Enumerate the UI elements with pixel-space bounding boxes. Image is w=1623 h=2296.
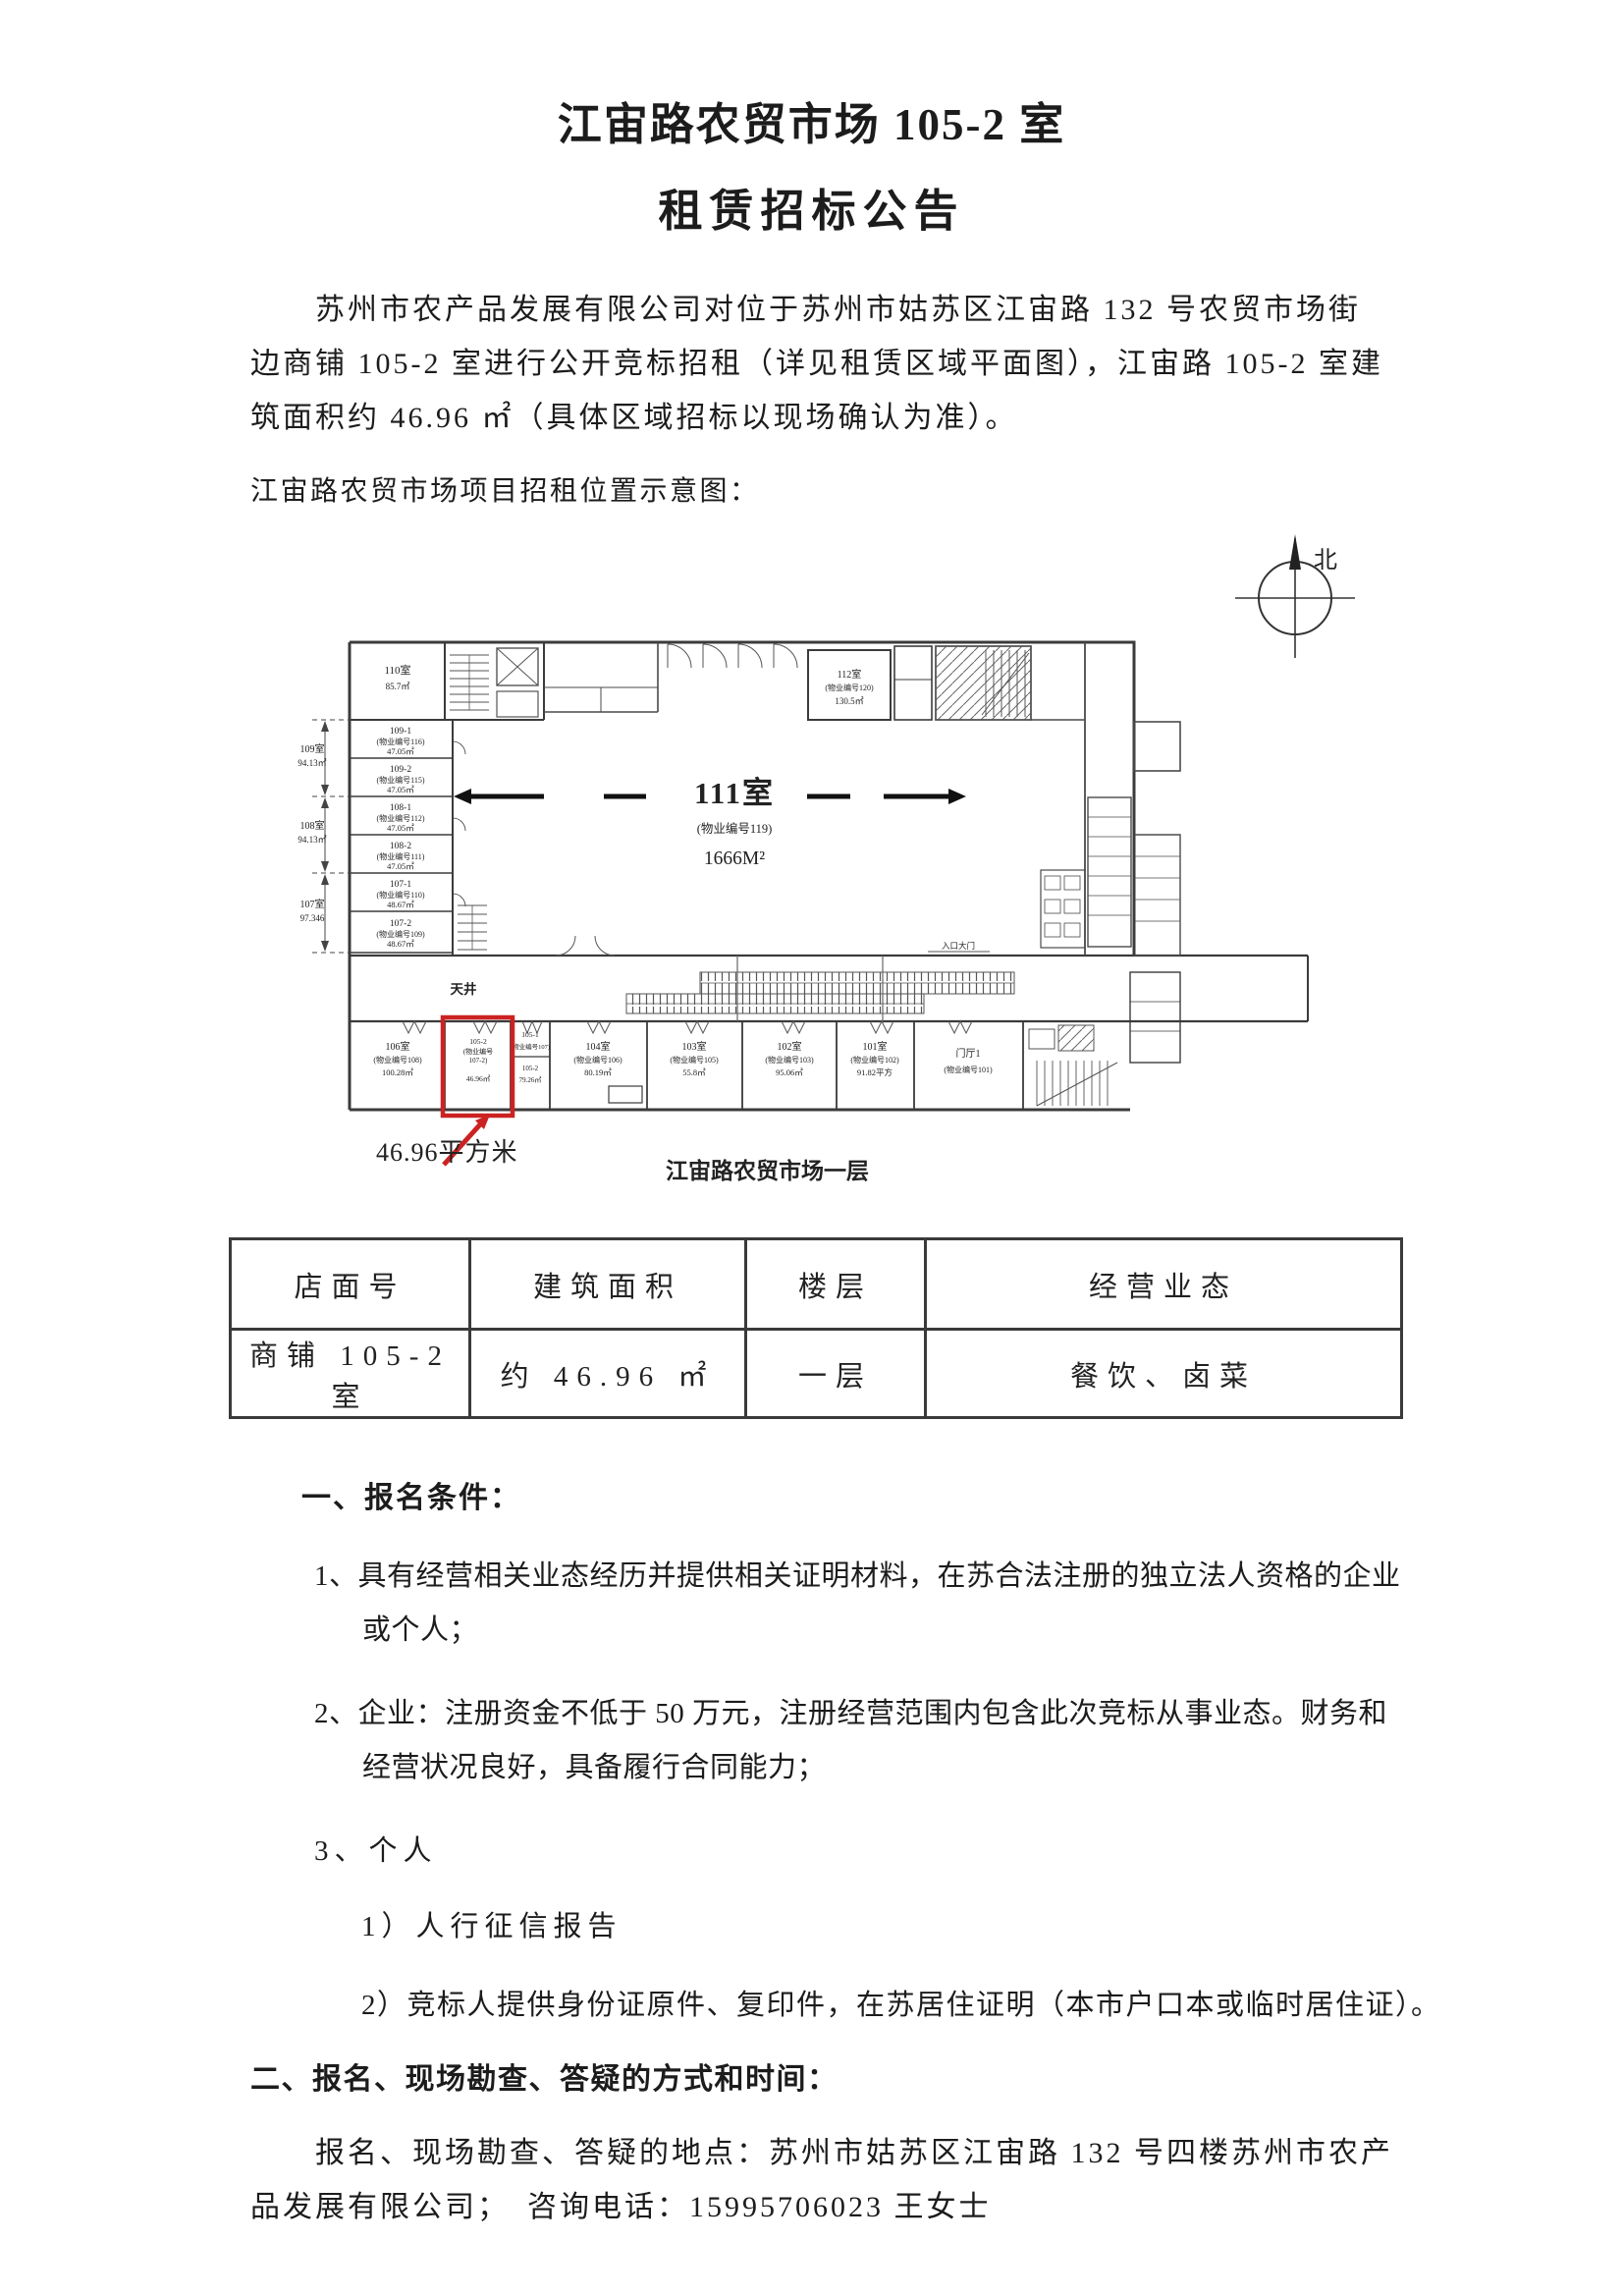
cell-business-type: 餐饮、卤菜: [926, 1330, 1402, 1418]
hall-code: (物业编号119): [697, 821, 773, 836]
dim-value: 97.346: [300, 913, 325, 923]
condition-line: 经营状况良好，具备履行合同能力；: [314, 1741, 1387, 1795]
main-title: 江宙路农贸市场 105-2 室: [0, 88, 1623, 152]
plan-caption: 江宙路农贸市场一层: [666, 1158, 869, 1183]
room-sub-name: 105-2: [522, 1065, 539, 1072]
room-name: 108-2: [390, 842, 411, 851]
room-name: 103室: [682, 1040, 707, 1053]
room-name: 112室: [838, 668, 862, 681]
room-name: 105-2: [469, 1037, 487, 1046]
room-code: (物业编号115): [376, 775, 424, 785]
north-compass-icon: 北: [1235, 534, 1355, 658]
room-area: 47.05㎡: [387, 823, 414, 833]
room-name: 107-2: [390, 919, 411, 929]
room-code: (物业编号110): [376, 890, 424, 900]
dim-name: 107室: [300, 898, 325, 910]
room-area: 80.19㎡: [584, 1067, 612, 1077]
contact-paragraph: 报名、现场勘查、答疑的地点：苏州市姑苏区江宙路 132 号四楼苏州市农产 品发展…: [250, 2126, 1393, 2234]
dim-name: 108室: [300, 819, 325, 832]
small-stair: [458, 905, 487, 950]
contact-line: 报名、现场勘查、答疑的地点：苏州市姑苏区江宙路 132 号四楼苏州市农产: [250, 2126, 1393, 2180]
room-area: 47.05㎡: [387, 746, 414, 756]
sub-item-1: 1）人行征信报告: [361, 1903, 622, 1944]
condition-line: 2、企业：注册资金不低于 50 万元，注册经营范围内包含此次竞标从事业态。财务和: [314, 1687, 1387, 1741]
room-code: (物业编号120): [825, 683, 874, 692]
plan-section-label: 江宙路农贸市场项目招租位置示意图：: [250, 469, 760, 509]
room-name: 门厅1: [956, 1047, 981, 1060]
room-name: 109-1: [390, 727, 411, 737]
door-swings-top: [668, 644, 797, 668]
courtyard-strip: 天井: [451, 956, 1015, 1021]
room-name: 107-1: [390, 880, 411, 890]
cell-shop-number: 商铺 105-2 室: [231, 1330, 470, 1418]
shop-info-table: 店面号 建筑面积 楼层 经营业态 商铺 105-2 室 约 46.96 ㎡ 一层…: [229, 1237, 1403, 1419]
highlight-area-label: 46.96平方米: [376, 1138, 518, 1167]
building-outline: [350, 642, 1308, 1110]
highlight-105-2: 46.96平方米: [376, 1017, 518, 1167]
staircase-hatched: [936, 646, 1031, 720]
condition-item-1: 1、具有经营相关业态经历并提供相关证明材料，在苏合法注册的独立法人资格的企业 或…: [314, 1550, 1401, 1658]
room-name: 104室: [586, 1040, 611, 1053]
dim-value: 94.13㎡: [298, 835, 326, 845]
north-label: 北: [1314, 547, 1337, 574]
room-code: (物业编号112): [376, 813, 424, 823]
highlight-box: [443, 1017, 513, 1116]
cell-floor: 一层: [746, 1330, 926, 1418]
room-sub-area: 79.26㎡: [519, 1076, 542, 1084]
cell-area: 约 46.96 ㎡: [470, 1330, 746, 1418]
room-code: (物业编号111): [377, 851, 425, 861]
room-code: (物业编号107): [511, 1042, 550, 1051]
courtyard-label: 天井: [451, 981, 477, 997]
header-cell: 楼层: [746, 1239, 926, 1330]
hall-111: 111室 (物业编号119) 1666M²: [454, 776, 966, 869]
entrance-label: 入口大门: [942, 941, 975, 951]
room-area: 91.82平方: [857, 1067, 893, 1077]
room-area: 100.28㎡: [382, 1067, 413, 1077]
room-area: 95.06㎡: [776, 1067, 803, 1077]
room-code: (物业编号116): [376, 737, 424, 746]
room-code: (物业编号108): [373, 1055, 422, 1065]
intro-paragraph: 苏州市农产品发展有限公司对位于苏州市姑苏区江宙路 132 号农贸市场街 边商铺 …: [250, 283, 1383, 445]
room-name: 101室: [863, 1040, 888, 1053]
room-area: 48.67㎡: [387, 900, 414, 909]
dim-name: 109室: [300, 742, 325, 755]
room-name: 108-1: [390, 803, 411, 813]
room-area: 48.67㎡: [387, 939, 414, 949]
room-code: (物业编号105): [670, 1055, 719, 1065]
room-code: (物业编号: [463, 1047, 493, 1056]
intro-line: 边商铺 105-2 室进行公开竞标招租（详见租赁区域平面图），江宙路 105-2…: [250, 337, 1383, 391]
room-name: 105-1: [521, 1030, 539, 1039]
utility-rooms: [544, 642, 658, 712]
right-wing: [1031, 642, 1180, 956]
table-header-row: 店面号 建筑面积 楼层 经营业态: [231, 1239, 1402, 1330]
room-112-labels: 112室 (物业编号120) 130.5㎡: [825, 668, 874, 706]
left-room-labels: 110室 85.7㎡ 109-1 (物业编号116) 47.05㎡ 109-2 …: [376, 663, 425, 949]
condition-item-2: 2、企业：注册资金不低于 50 万元，注册经营范围内包含此次竞标从事业态。财务和…: [314, 1687, 1387, 1795]
room-area: 47.05㎡: [387, 861, 414, 871]
intro-line: 苏州市农产品发展有限公司对位于苏州市姑苏区江宙路 132 号农贸市场街: [250, 283, 1383, 337]
room-area: 55.8㎡: [682, 1067, 706, 1077]
section1-title: 一、报名条件：: [301, 1473, 521, 1516]
document-page: 江宙路农贸市场 105-2 室 租赁招标公告 苏州市农产品发展有限公司对位于苏州…: [0, 0, 1623, 2296]
room-area: 46.96㎡: [466, 1074, 491, 1083]
shop-door-marks: [403, 1021, 972, 1033]
entrance-stair-hall: [1029, 1025, 1117, 1106]
dim-value: 94.13㎡: [298, 758, 326, 768]
room-code: (物业编号106): [573, 1055, 622, 1065]
dimension-annotations: 109室 94.13㎡ 108室 94.13㎡ 107室 97.346: [298, 720, 352, 953]
room-code: (物业编号103): [765, 1055, 814, 1065]
contact-line: 品发展有限公司； 咨询电话：15995706023 王女士: [250, 2180, 1393, 2234]
condition-line: 或个人；: [314, 1604, 1401, 1658]
stairwell-block: [450, 648, 538, 717]
room-area: 130.5㎡: [835, 696, 863, 706]
floor-plan: 北: [196, 511, 1473, 1237]
hall-bottom-details: 入口大门: [556, 936, 990, 956]
intro-line: 筑面积约 46.96 ㎡（具体区域招标以现场确认为准）。: [250, 391, 1383, 445]
hall-name: 111室: [694, 776, 775, 810]
table-row: 商铺 105-2 室 约 46.96 ㎡ 一层 餐饮、卤菜: [231, 1330, 1402, 1418]
room-code: 107-2): [469, 1057, 488, 1065]
room-name: 110室: [384, 663, 410, 677]
condition-line: 1、具有经营相关业态经历并提供相关证明材料，在苏合法注册的独立法人资格的企业: [314, 1550, 1401, 1604]
condition-item-3: 3、个人: [314, 1825, 438, 1879]
hall-area: 1666M²: [704, 848, 765, 869]
sub-item-2: 2）竞标人提供身份证原件、复印件，在苏居住证明（本市户口本或临时居住证）。: [361, 1982, 1441, 2023]
header-cell: 经营业态: [926, 1239, 1402, 1330]
room-area: 85.7㎡: [386, 682, 410, 691]
room-code: (物业编号101): [944, 1065, 993, 1074]
room-name: 102室: [778, 1040, 802, 1053]
subtitle: 租赁招标公告: [0, 175, 1623, 239]
room-name: 106室: [386, 1040, 410, 1053]
room-name: 109-2: [390, 765, 411, 775]
header-cell: 店面号: [231, 1239, 470, 1330]
room-code: (物业编号109): [376, 929, 425, 939]
header-cell: 建筑面积: [470, 1239, 746, 1330]
bottom-shop-labels: 106室 (物业编号108) 100.28㎡ 105-2 (物业编号 107-2…: [373, 1030, 993, 1084]
room-code: (物业编号102): [850, 1055, 899, 1065]
section2-title: 二、报名、现场勘查、答疑的方式和时间：: [250, 2054, 839, 2098]
room-area: 47.05㎡: [387, 785, 414, 794]
